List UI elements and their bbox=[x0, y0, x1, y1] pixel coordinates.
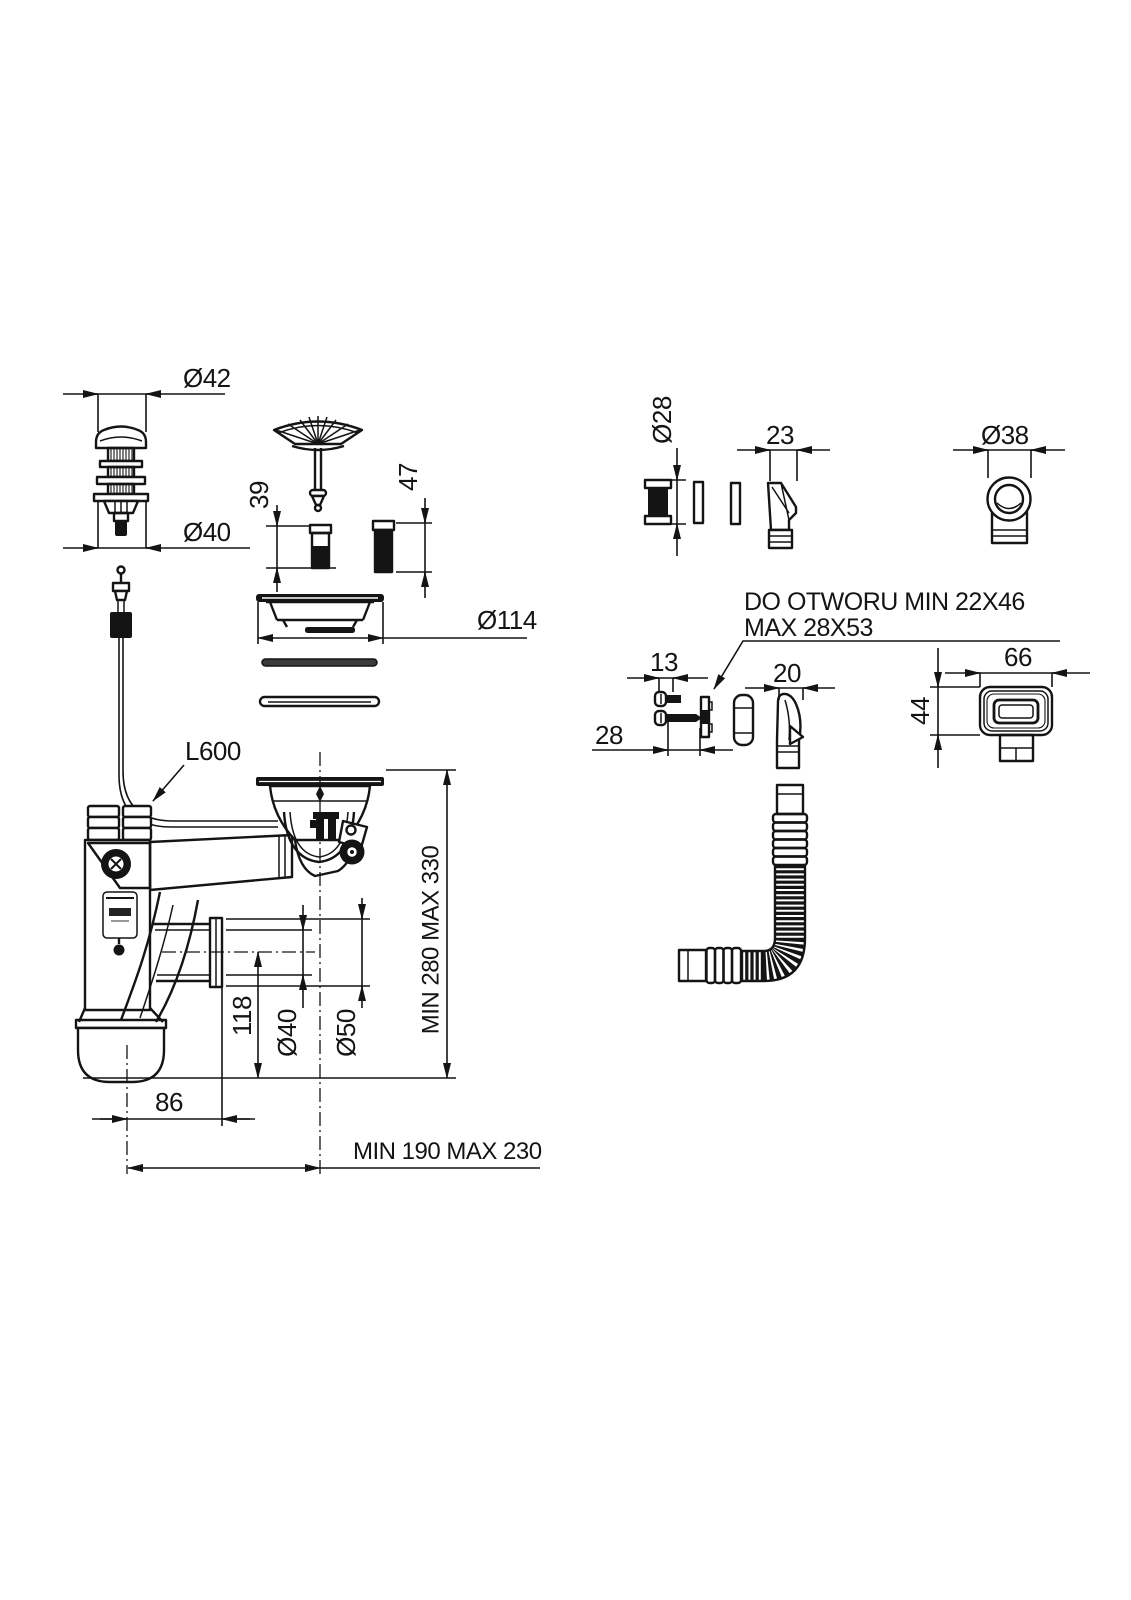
control-cable bbox=[110, 567, 278, 828]
dim-label-overflow-spout: 20 bbox=[773, 658, 801, 688]
dim-overflow-spout: 20 bbox=[745, 658, 835, 700]
overflow-cover bbox=[980, 687, 1052, 761]
note-line-1: DO OTWORU MIN 22X46 bbox=[744, 588, 1025, 616]
dim-tube-long: 47 bbox=[393, 463, 432, 598]
dim-elbow-diameter: Ø38 bbox=[953, 420, 1065, 478]
flat-gasket bbox=[262, 659, 377, 666]
sink-flange bbox=[256, 594, 384, 633]
dim-label-knob-top-diameter: Ø42 bbox=[183, 363, 231, 393]
flexible-hose bbox=[679, 785, 807, 983]
note-line-2: MAX 28X53 bbox=[744, 614, 873, 642]
gasket-slat-1 bbox=[694, 482, 703, 523]
hose-elbow-connector bbox=[988, 478, 1031, 544]
drawing-svg: Ø42 Ø40 L600 bbox=[0, 0, 1131, 1600]
dim-label-outlet-height: 118 bbox=[227, 996, 257, 1036]
dim-knob-thread: Ø40 bbox=[63, 500, 250, 548]
dim-label-screw-long: 28 bbox=[595, 720, 623, 750]
dim-label-tube-short: 39 bbox=[244, 481, 274, 509]
tube-short bbox=[310, 525, 331, 568]
dim-label-flange-diameter: Ø114 bbox=[477, 605, 537, 635]
dim-plug-diameter: Ø28 bbox=[647, 396, 686, 556]
overflow-spout bbox=[777, 694, 803, 768]
screw-short bbox=[655, 692, 681, 706]
dim-cover-height: 44 bbox=[905, 648, 980, 768]
tube-long bbox=[373, 521, 394, 572]
dim-label-tube-long: 47 bbox=[393, 463, 423, 491]
dim-label-screw-short: 13 bbox=[650, 647, 678, 677]
overflow-pad bbox=[734, 695, 753, 745]
strainer-basket bbox=[274, 416, 362, 511]
dim-label-plug-diameter: Ø28 bbox=[647, 396, 677, 444]
hole-size-note: DO OTWORU MIN 22X46 MAX 28X53 bbox=[714, 588, 1060, 689]
dim-label-spout-width: 23 bbox=[766, 420, 794, 450]
dim-label-elbow-diameter: Ø38 bbox=[981, 420, 1029, 450]
mounting-clip bbox=[701, 697, 712, 737]
dim-label-cover-width: 66 bbox=[1004, 642, 1032, 672]
dim-cover-width: 66 bbox=[945, 642, 1090, 687]
popup-control-knob bbox=[94, 427, 148, 537]
dim-screw-short: 13 bbox=[627, 647, 708, 692]
gasket-slat-2 bbox=[731, 483, 740, 524]
dim-label-cover-height: 44 bbox=[905, 697, 935, 725]
cable-length-callout: L600 bbox=[153, 736, 241, 801]
dim-flange-diameter: Ø114 bbox=[258, 602, 537, 644]
rubber-gasket bbox=[260, 697, 379, 706]
dim-label-reach-range: MIN 190 MAX 230 bbox=[353, 1138, 542, 1165]
dim-label-outlet-outer-diameter: Ø50 bbox=[331, 1009, 361, 1057]
technical-drawing-page: Ø42 Ø40 L600 bbox=[0, 0, 1131, 1600]
overflow-plug bbox=[645, 480, 671, 524]
dim-label-cable-length: L600 bbox=[185, 736, 241, 766]
siphon-assembly bbox=[76, 806, 292, 1082]
dim-label-knob-thread-diameter: Ø40 bbox=[183, 517, 231, 547]
dim-spout-width: 23 bbox=[737, 420, 830, 481]
dim-knob-top: Ø42 bbox=[63, 363, 231, 432]
dim-label-height-range: MIN 280 MAX 330 bbox=[418, 846, 445, 1035]
dim-label-outlet-inner-diameter: Ø40 bbox=[272, 1009, 302, 1057]
screw-long bbox=[655, 711, 702, 725]
overflow-elbow-small bbox=[768, 483, 796, 548]
dim-label-trap-offset: 86 bbox=[155, 1087, 183, 1117]
